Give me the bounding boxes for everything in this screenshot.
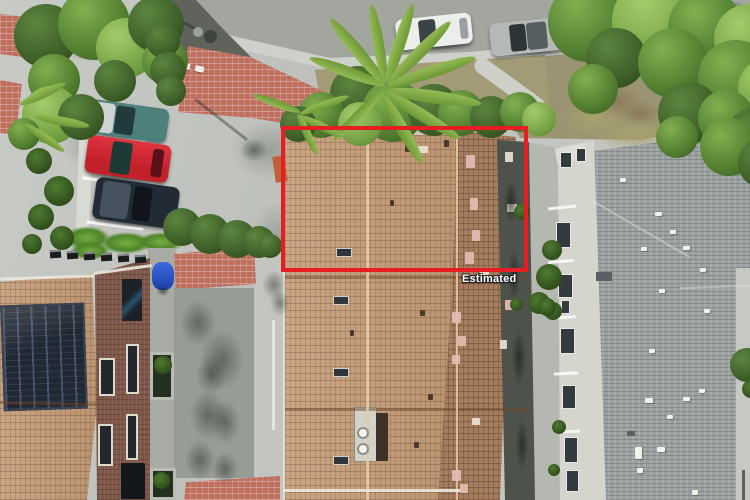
- patch-light: [472, 418, 480, 425]
- chimney-cap: [357, 427, 369, 439]
- patch-dark: [596, 272, 612, 281]
- stain: [185, 440, 215, 480]
- patch-pink: [458, 336, 466, 346]
- vent-mark: [692, 490, 698, 495]
- vent-mark: [645, 398, 653, 403]
- balcony-window: [562, 385, 576, 409]
- edge-light: [283, 489, 461, 492]
- vent-mark: [700, 268, 706, 272]
- vent-mark: [699, 389, 705, 393]
- skylight: [333, 368, 349, 377]
- balcony-window: [560, 328, 575, 354]
- car-windshield: [509, 24, 527, 52]
- streetlight-lamp: [193, 27, 203, 37]
- bush: [154, 356, 172, 374]
- bush: [552, 420, 566, 434]
- bush: [153, 472, 170, 489]
- car-windshield: [113, 105, 136, 136]
- bush: [50, 226, 74, 250]
- patch-pink: [452, 355, 460, 364]
- curb-light: [272, 320, 275, 430]
- patch-pink: [452, 312, 461, 323]
- car-roof: [525, 21, 548, 51]
- vent-mark: [659, 289, 665, 293]
- bush: [28, 204, 54, 230]
- rooftop-vent: [67, 251, 79, 260]
- stain: [196, 355, 226, 395]
- patch-dark: [627, 431, 635, 436]
- balcony-window: [561, 300, 570, 314]
- car-rear-window: [459, 17, 470, 39]
- skylight: [333, 456, 349, 465]
- rooftop-vent: [101, 253, 113, 262]
- roof-vent: [428, 394, 433, 400]
- rooftop-vent: [84, 252, 96, 261]
- tree-mid: [568, 64, 618, 114]
- balcony-window: [564, 437, 578, 463]
- balcony-window: [560, 152, 572, 168]
- estimated-label: Estimated: [462, 273, 516, 285]
- bush: [22, 234, 42, 254]
- solar-panel-array: [0, 303, 88, 412]
- streetlight-lamp: [204, 30, 217, 43]
- vent-mark: [670, 230, 676, 234]
- shadow-blob: [240, 138, 268, 162]
- vent-mark: [667, 415, 673, 419]
- facade-window: [98, 424, 113, 466]
- facade-window: [126, 414, 138, 460]
- patch-pink: [460, 484, 468, 493]
- bush: [538, 298, 556, 316]
- rooftop-vent: [135, 255, 147, 264]
- vent-mark: [620, 178, 626, 182]
- patch-dark: [742, 470, 745, 500]
- vent-mark: [637, 468, 643, 473]
- stain-dark: [516, 420, 528, 470]
- bush: [542, 240, 562, 260]
- tree-dark: [258, 234, 282, 258]
- stain: [270, 290, 290, 316]
- tree-dark: [94, 60, 136, 102]
- car-roof: [99, 181, 132, 220]
- stain: [212, 452, 238, 486]
- bush: [548, 464, 560, 476]
- vent-mark: [704, 309, 710, 313]
- chimney-cap: [357, 443, 369, 455]
- facade-window: [99, 358, 115, 396]
- dirt-blob: [620, 100, 660, 126]
- bush: [44, 176, 74, 206]
- vent-mark: [635, 447, 642, 459]
- roof-vent: [420, 310, 425, 316]
- facade-window: [126, 344, 139, 394]
- chimney-flue: [376, 413, 388, 461]
- balcony-window: [576, 148, 586, 162]
- rooftop-vent: [118, 254, 130, 263]
- car-windshield: [130, 186, 153, 222]
- facade-doorway: [121, 463, 145, 499]
- vent-mark: [657, 447, 665, 452]
- bush: [510, 298, 523, 311]
- bush: [26, 148, 52, 174]
- stain-dark: [156, 286, 170, 296]
- balcony-window: [566, 470, 579, 492]
- roof-vent: [414, 442, 419, 448]
- roof-vent: [350, 330, 354, 336]
- car-rear-window: [150, 149, 165, 178]
- vent-mark: [683, 246, 690, 250]
- vent-mark: [683, 397, 690, 401]
- facade-dark-panel: [122, 279, 142, 321]
- seam-dark: [285, 408, 528, 411]
- car-windshield: [109, 141, 133, 175]
- aerial-photo: Estimated: [0, 0, 750, 500]
- tree-mid: [656, 116, 698, 158]
- vent-mark: [655, 212, 662, 216]
- skylight: [333, 296, 349, 305]
- bush: [536, 264, 562, 290]
- rooftop-vent: [50, 250, 62, 259]
- patch-pink: [452, 470, 461, 481]
- estimated-boundary-outline: [281, 126, 528, 272]
- vent-mark: [641, 247, 647, 251]
- stain-dark: [512, 330, 526, 386]
- tree-dark: [156, 76, 186, 106]
- stain: [210, 400, 240, 444]
- vent-mark: [649, 349, 655, 353]
- patch-light: [500, 340, 507, 349]
